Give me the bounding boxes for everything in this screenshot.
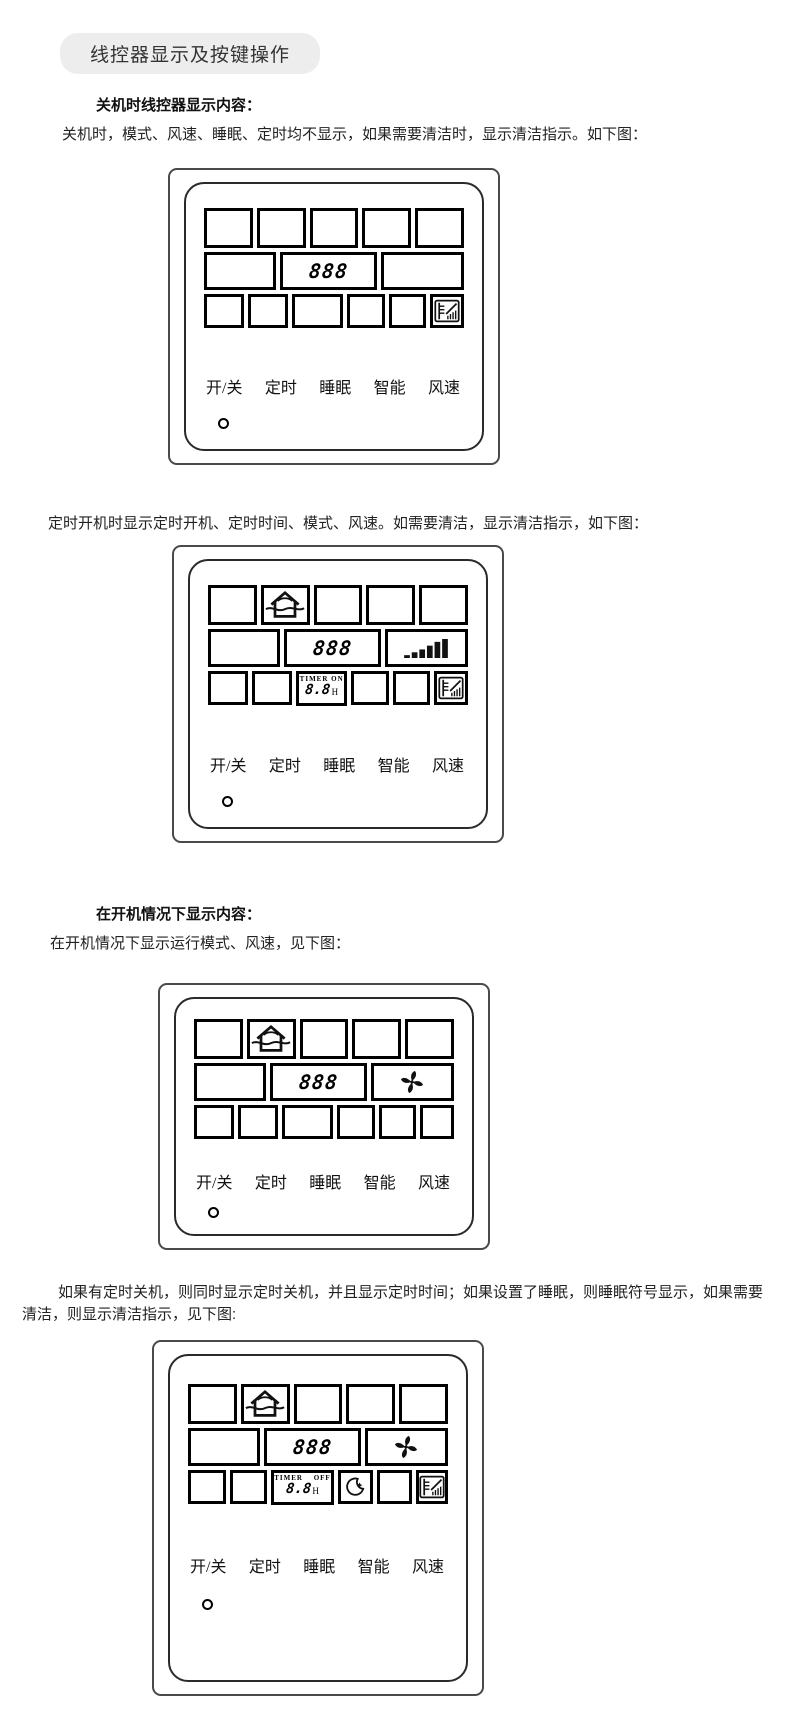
lcd-cell-blank <box>238 1105 278 1139</box>
sleep-button-label: 睡眠 <box>323 752 355 776</box>
lcd-cell-blank <box>393 671 430 705</box>
mode-cell <box>247 1019 296 1059</box>
lcd-display: 888 <box>188 1384 448 1505</box>
temperature-digits: 888 <box>312 638 353 658</box>
lcd-row-1 <box>188 1384 448 1424</box>
lcd-cell-blank <box>294 1384 343 1424</box>
lcd-cell-blank <box>405 1019 454 1059</box>
lcd-cell-blank <box>347 294 384 328</box>
controller-panel: 888 <box>168 1354 468 1682</box>
lcd-display: 888 <box>204 208 464 328</box>
fanspeed-button-label: 风速 <box>428 374 460 398</box>
clean-indicator-cell <box>434 671 468 705</box>
section3-heading: 在开机情况下显示内容： <box>96 903 790 924</box>
lcd-cell-blank <box>381 252 464 290</box>
smart-button-label: 智能 <box>374 374 406 398</box>
lcd-cell-blank <box>204 252 276 290</box>
button-labels: 开/关 定时 睡眠 智能 风速 <box>206 374 460 398</box>
smart-button-label: 智能 <box>364 1169 396 1193</box>
fan-speed-wedge-bars-icon <box>403 639 449 658</box>
lcd-row-3 <box>204 294 464 328</box>
clean-indicator-cell <box>430 294 464 328</box>
timer-button-label: 定时 <box>269 752 301 776</box>
lcd-row-1 <box>194 1019 454 1059</box>
indicator-led <box>202 1599 213 1610</box>
section3-text: 在开机情况下显示运行模式、风速，见下图： <box>50 933 790 955</box>
temperature-cell: 888 <box>264 1428 361 1466</box>
power-button-label: 开/关 <box>190 1553 226 1577</box>
lcd-cell-blank <box>282 1105 333 1139</box>
timer-button-label: 定时 <box>255 1169 287 1193</box>
fan-pinwheel-icon <box>400 1070 424 1094</box>
indicator-led <box>208 1207 219 1218</box>
lcd-cell-blank <box>208 671 248 705</box>
controller-diagram-timer-off-sleep: 888 <box>152 1340 484 1696</box>
lcd-cell-blank <box>230 1470 268 1504</box>
clean-indicator-cell <box>416 1470 448 1504</box>
lcd-cell-blank <box>351 671 388 705</box>
lcd-cell-blank <box>415 208 464 248</box>
lcd-cell-blank <box>188 1470 226 1504</box>
lcd-display: 888 <box>194 1019 454 1139</box>
lcd-cell-blank <box>377 1470 412 1504</box>
clean-filter-icon <box>438 676 464 700</box>
page-title: 线控器显示及按键操作 <box>60 33 320 74</box>
indicator-led <box>218 418 229 429</box>
fanspeed-button-label: 风速 <box>418 1169 450 1193</box>
section1-text: 关机时，模式、风速、睡眠、定时均不显示，如果需要清洁时，显示清洁指示。如下图： <box>62 124 790 146</box>
timer-digits: 8.8 <box>305 683 332 697</box>
lcd-cell-blank <box>257 208 306 248</box>
lcd-cell-blank <box>194 1019 243 1059</box>
sleep-button-label: 睡眠 <box>303 1553 335 1577</box>
lcd-row-2: 888 <box>208 629 468 667</box>
lcd-row-3 <box>194 1105 454 1139</box>
lcd-cell-blank <box>352 1019 401 1059</box>
button-labels: 开/关 定时 睡眠 智能 风速 <box>190 1553 444 1577</box>
lcd-row-2: 888 <box>194 1063 454 1101</box>
sleep-cell <box>338 1470 373 1504</box>
lcd-cell-blank <box>194 1063 266 1101</box>
timer-digits: 8.8 <box>285 1482 312 1496</box>
lcd-row-3: TIMER ON 8.8 H <box>208 671 468 706</box>
page-title-text: 线控器显示及按键操作 <box>90 45 290 66</box>
lcd-cell-blank <box>208 585 257 625</box>
controller-panel: 888 <box>184 182 484 451</box>
controller-diagram-off: 888 <box>168 168 500 465</box>
section1-heading: 关机时线控器显示内容： <box>96 94 790 115</box>
controller-diagram-timer-on: 888 <box>172 545 504 843</box>
lcd-cell-blank <box>399 1384 448 1424</box>
fan-speed-cell <box>385 629 468 667</box>
lcd-cell-blank <box>420 1105 454 1139</box>
mode-cell <box>261 585 310 625</box>
lcd-cell-blank <box>310 208 359 248</box>
lcd-display: 888 <box>208 585 468 706</box>
lcd-cell-blank <box>366 585 415 625</box>
fan-cell <box>365 1428 448 1466</box>
timer-button-label: 定时 <box>265 374 297 398</box>
lcd-cell-blank <box>337 1105 374 1139</box>
house-airflow-icon <box>251 1024 291 1055</box>
lcd-cell-blank <box>248 294 288 328</box>
lcd-cell-blank <box>379 1105 416 1139</box>
fan-cell <box>371 1063 454 1101</box>
lcd-cell-blank <box>252 671 292 705</box>
temperature-digits: 888 <box>298 1072 339 1092</box>
sleep-button-label: 睡眠 <box>309 1169 341 1193</box>
lcd-row-2: 888 <box>188 1428 448 1466</box>
temperature-cell: 888 <box>280 252 377 290</box>
fanspeed-button-label: 风速 <box>412 1553 444 1577</box>
timer-unit: H <box>332 688 339 697</box>
lcd-cell-blank <box>188 1384 237 1424</box>
lcd-cell-blank <box>194 1105 234 1139</box>
power-button-label: 开/关 <box>206 374 242 398</box>
lcd-cell-blank <box>208 629 280 667</box>
clean-filter-icon <box>434 299 460 323</box>
indicator-led <box>222 796 233 807</box>
section2-text: 定时开机时显示定时开机、定时时间、模式、风速。如需要清洁，显示清洁指示，如下图： <box>48 513 790 535</box>
lcd-cell-blank <box>300 1019 349 1059</box>
controller-diagram-on: 888 <box>158 983 490 1250</box>
lcd-cell-blank <box>362 208 411 248</box>
clean-filter-icon <box>419 1475 445 1499</box>
lcd-cell-blank <box>204 208 253 248</box>
lcd-cell-blank <box>419 585 468 625</box>
house-airflow-icon <box>265 590 305 621</box>
lcd-cell-blank <box>314 585 363 625</box>
timer-cell: TIMER ON 8.8 H <box>296 671 347 706</box>
controller-panel: 888 <box>188 559 488 829</box>
mode-cell <box>241 1384 290 1424</box>
crescent-moon-icon <box>345 1477 365 1497</box>
power-button-label: 开/关 <box>196 1169 232 1193</box>
lcd-cell-blank <box>346 1384 395 1424</box>
lcd-row-1 <box>204 208 464 248</box>
lcd-row-3: TIMER OFF 8.8 H <box>188 1470 448 1505</box>
lcd-cell-blank <box>204 294 244 328</box>
lcd-cell-blank <box>389 294 426 328</box>
lcd-cell-blank <box>292 294 343 328</box>
fanspeed-button-label: 风速 <box>432 752 464 776</box>
temperature-cell: 888 <box>284 629 381 667</box>
temperature-cell: 888 <box>270 1063 367 1101</box>
timer-button-label: 定时 <box>249 1553 281 1577</box>
power-button-label: 开/关 <box>210 752 246 776</box>
smart-button-label: 智能 <box>358 1553 390 1577</box>
lcd-row-1 <box>208 585 468 625</box>
temperature-digits: 888 <box>308 261 349 281</box>
house-airflow-icon <box>245 1389 285 1420</box>
fan-pinwheel-icon <box>394 1435 418 1459</box>
temperature-digits: 888 <box>292 1437 333 1457</box>
controller-panel: 888 <box>174 997 474 1236</box>
manual-page: 线控器显示及按键操作 关机时线控器显示内容： 关机时，模式、风速、睡眠、定时均不… <box>0 0 790 1736</box>
section4-text: 如果有定时关机，则同时显示定时关机，并且显示定时时间；如果设置了睡眠，则睡眠符号… <box>22 1282 766 1326</box>
sleep-button-label: 睡眠 <box>319 374 351 398</box>
timer-unit: H <box>312 1487 319 1496</box>
lcd-row-2: 888 <box>204 252 464 290</box>
button-labels: 开/关 定时 睡眠 智能 风速 <box>210 752 464 776</box>
smart-button-label: 智能 <box>378 752 410 776</box>
lcd-cell-blank <box>188 1428 260 1466</box>
timer-cell: TIMER OFF 8.8 H <box>271 1470 333 1505</box>
button-labels: 开/关 定时 睡眠 智能 风速 <box>196 1169 450 1193</box>
